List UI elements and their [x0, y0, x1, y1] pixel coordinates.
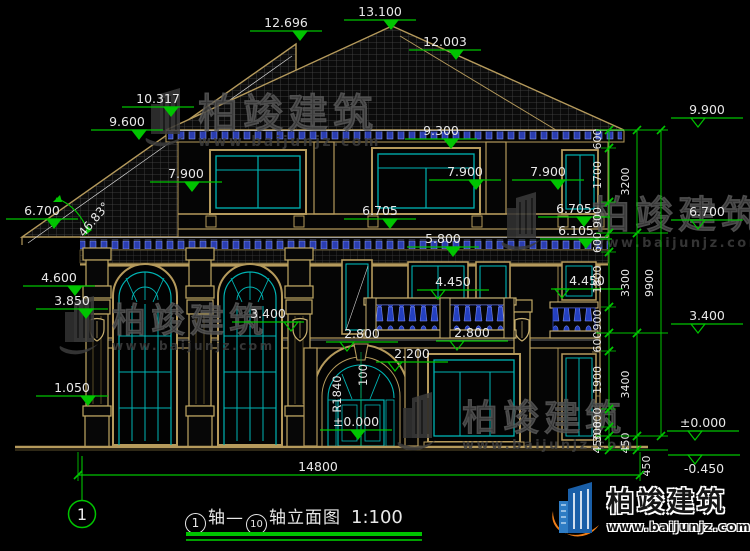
column-1	[83, 248, 111, 447]
arched-window-right	[218, 264, 282, 445]
elevation-value: 13.100	[358, 4, 402, 19]
elevation-value: ±0.000	[333, 414, 379, 429]
watermark-brand: 柏竣建筑	[112, 301, 268, 341]
elevation-value: 4.600	[41, 270, 77, 285]
arch-annotation-value: R1840	[330, 375, 344, 412]
balcony-center	[364, 298, 516, 338]
arch-annotation-value: 100	[356, 364, 370, 386]
arched-window-left	[113, 264, 177, 445]
watermark-url: www.baijunjz.com	[112, 339, 275, 353]
elevation-value: 1.050	[54, 380, 90, 395]
elevation-value: ±0.000	[680, 415, 726, 430]
elevation-value: 3.850	[54, 293, 90, 308]
elevation-value: 3.400	[250, 306, 286, 321]
title-text-suffix: 轴立面图	[269, 508, 341, 528]
elevation-value: 12.696	[264, 15, 308, 30]
title-underline-thin	[186, 539, 422, 541]
elevation-value: 2.800	[344, 326, 380, 341]
elevation-value: 6.705	[556, 201, 592, 216]
elevation-marker: 9.900	[671, 102, 743, 127]
watermark-url: www.baijunjz.com	[592, 236, 750, 251]
dimension-value: 1800	[591, 266, 604, 294]
drawing-title: 1轴—10轴立面图1:100	[183, 503, 403, 535]
elevation-value: 6.705	[362, 203, 398, 218]
elevation-marker: 12.696	[250, 15, 322, 40]
elevation-value: -0.450	[684, 461, 724, 476]
brand-logo-icon	[550, 481, 602, 541]
elevation-value: 4.450	[435, 274, 471, 289]
dimension-value: 600	[591, 232, 604, 253]
elevation-marker: 3.400	[671, 308, 743, 333]
elevation-value: 7.900	[530, 164, 566, 179]
dimension-chain: 9900	[643, 126, 665, 440]
entry-pilaster-left	[304, 348, 317, 446]
elevation-marker: -0.450	[668, 455, 740, 476]
scale-label: 1:100	[351, 507, 403, 528]
elevation-value: 6.700	[689, 204, 725, 219]
elevation-value: 9.600	[109, 114, 145, 129]
dimension-value: 1700	[591, 161, 604, 189]
dimension-value: 1900	[591, 366, 604, 394]
elevation-marker: 13.100	[344, 4, 416, 29]
pilaster-3f-b	[486, 142, 506, 214]
elevation-value: 7.900	[168, 166, 204, 181]
elevation-value: 6.700	[24, 203, 60, 218]
axis-marker-1: 1	[69, 456, 96, 528]
title-text-mid: 轴—	[208, 508, 244, 528]
watermark-brand: 柏竣建筑	[198, 91, 378, 137]
brand-name: 柏竣建筑	[607, 489, 750, 517]
axis-number: 1	[77, 505, 87, 524]
watermark-url: www.baijunjz.com	[198, 134, 381, 150]
elevation-value: 12.003	[423, 34, 467, 49]
cad-elevation-canvas: 柏竣建筑www.baijunjz.com柏竣建筑www.baijunjz.com…	[0, 0, 750, 551]
window-3f-left	[210, 150, 306, 214]
overall-width-value: 14800	[298, 459, 338, 474]
axis-start-bubble: 1	[185, 513, 206, 534]
watermark-brand: 柏竣建筑	[592, 193, 750, 237]
brand-url: www.baijunjz.com	[607, 520, 750, 533]
title-underline	[186, 532, 422, 536]
dimension-value: 3400	[619, 371, 632, 399]
dimension-value: 900	[591, 207, 604, 228]
elevation-value: 10.317	[136, 91, 180, 106]
dimension-value: 9900	[643, 269, 656, 297]
brand-logo: 柏竣建筑 www.baijunjz.com	[550, 481, 750, 541]
dimension-value: 600	[591, 332, 604, 353]
elevation-drawing: 柏竣建筑www.baijunjz.com柏竣建筑www.baijunjz.com…	[0, 0, 750, 551]
elevation-value: 2.200	[394, 346, 430, 361]
elevation-value: 9.900	[689, 102, 725, 117]
dimension-value: 3300	[619, 269, 632, 297]
dimension-value: 600	[591, 129, 604, 150]
elevation-value: 9.300	[423, 123, 459, 138]
elevation-value: 7.900	[447, 164, 483, 179]
elevation-value: 5.800	[425, 231, 461, 246]
elevation-value: 6.105	[558, 223, 594, 238]
dimension-value: 900	[591, 310, 604, 331]
elevation-marker: ±0.000	[667, 415, 739, 440]
elevation-value: 2.800	[454, 325, 490, 340]
window-2f-b	[476, 262, 510, 302]
pilaster-3f-a	[314, 142, 334, 214]
elevation-value: 3.400	[689, 308, 725, 323]
dimension-value: 3200	[619, 168, 632, 196]
bottom-dimension: 14800	[74, 452, 644, 481]
